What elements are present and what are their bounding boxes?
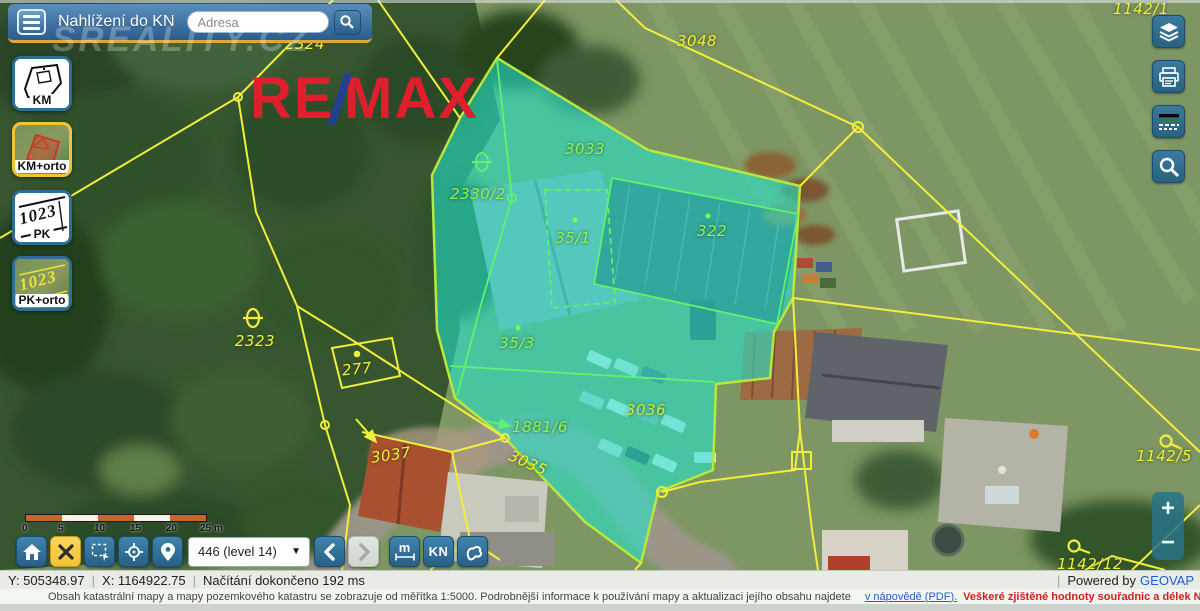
magnifier-icon — [339, 14, 355, 30]
map-viewer-app: 232430481142/12323277303730351142/51142/… — [0, 0, 1200, 611]
zoom-panel: + − — [1152, 492, 1184, 560]
layers-button[interactable] — [1152, 15, 1185, 48]
scale-bar-labels: 0510152025 m — [25, 522, 207, 534]
home-icon — [22, 542, 42, 562]
magnifier-icon — [1158, 156, 1180, 178]
window-bottom-edge — [0, 604, 1200, 611]
scale-label: 0 — [22, 523, 28, 534]
page-title: Nahlížení do KN — [58, 13, 175, 31]
close-tool-button[interactable] — [50, 536, 81, 567]
aerial-map-graphic — [0, 0, 1200, 570]
status-bar: Y: 505348.97 | X: 1164922.75 | Načítání … — [0, 570, 1200, 589]
map-pin-icon — [159, 542, 177, 562]
scale-label: 20 — [166, 523, 177, 534]
chevron-down-icon: ▼ — [291, 546, 309, 557]
scale-label: 15 — [130, 523, 141, 534]
scale-segment — [170, 515, 206, 521]
scale-segment — [62, 515, 98, 521]
address-search-button[interactable] — [334, 10, 361, 35]
address-search-input[interactable] — [187, 11, 329, 33]
info-text: Obsah katastrální mapy a mapy pozemkovéh… — [48, 591, 851, 603]
scale-segment — [98, 515, 134, 521]
level-dropdown[interactable]: 446 (level 14) ▼ — [188, 537, 310, 567]
loading-status: Načítání dokončeno 192 ms — [203, 573, 365, 588]
print-button[interactable] — [1152, 60, 1185, 93]
menu-hamburger-button[interactable] — [17, 9, 46, 35]
map-type-km-label: KM — [30, 94, 55, 107]
back-button[interactable] — [314, 536, 345, 567]
map-type-pk-button[interactable]: 1023 PK — [12, 190, 72, 245]
scale-label: 10 — [94, 523, 105, 534]
kn-button-label: KN — [429, 544, 449, 559]
map-type-km-orto-label: KM+orto — [15, 160, 70, 173]
scale-bar-segments — [25, 514, 207, 522]
kn-button[interactable]: KN — [423, 536, 454, 567]
map-type-pk-orto-label: PK+orto — [15, 294, 68, 307]
powered-by-brand-link[interactable]: GEOVAP — [1140, 573, 1194, 588]
info-bar: Obsah katastrální mapy a mapy pozemkovéh… — [0, 589, 1200, 604]
window-top-edge — [0, 0, 1200, 3]
help-pdf-link[interactable]: v nápovědě (PDF). — [865, 591, 957, 603]
map-type-km-orto-button[interactable]: KM+orto — [12, 122, 72, 177]
scale-label: 5 — [58, 523, 64, 534]
powered-by-prefix: Powered by — [1067, 573, 1136, 588]
bottom-toolbar: 446 (level 14) ▼ m KN — [16, 536, 491, 567]
print-icon — [1158, 66, 1180, 88]
map-canvas[interactable]: 232430481142/12323277303730351142/51142/… — [0, 0, 1200, 570]
zoom-out-button[interactable]: − — [1152, 532, 1184, 554]
home-button[interactable] — [16, 536, 47, 567]
locate-button[interactable] — [118, 536, 149, 567]
scale-settings-button[interactable] — [1152, 105, 1185, 138]
marker-button[interactable] — [152, 536, 183, 567]
coord-x: X: 1164922.75 — [102, 573, 186, 588]
measure-icon: m — [394, 543, 416, 561]
chevron-left-icon — [321, 542, 339, 562]
map-type-pk-label: PK — [31, 228, 54, 241]
polygon-info-button[interactable] — [457, 536, 488, 567]
level-dropdown-value: 446 (level 14) — [189, 544, 291, 559]
scale-preview-icon — [1157, 111, 1181, 133]
map-type-km-button[interactable]: KM — [12, 56, 72, 111]
scale-segment — [26, 515, 62, 521]
selection-rectangle-icon — [90, 542, 110, 562]
warning-text: Veškeré zjištěné hodnoty souřadnic a dél… — [963, 591, 1200, 603]
forward-button[interactable] — [348, 536, 379, 567]
map-search-button[interactable] — [1152, 150, 1185, 183]
polygon-outline-icon — [462, 541, 484, 563]
scale-label: 25 m — [200, 523, 223, 534]
measure-button[interactable]: m — [389, 536, 420, 567]
layers-icon — [1158, 21, 1180, 43]
target-icon — [124, 542, 144, 562]
app-header: Nahlížení do KN — [8, 4, 372, 43]
scale-segment — [134, 515, 170, 521]
coord-y: Y: 505348.97 — [8, 573, 85, 588]
chevron-right-icon — [355, 542, 373, 562]
select-area-button[interactable] — [84, 536, 115, 567]
close-icon — [58, 544, 74, 560]
zoom-in-button[interactable]: + — [1152, 498, 1184, 520]
map-type-pk-orto-button[interactable]: 1023 PK+orto — [12, 256, 72, 311]
scale-bar: 0510152025 m — [25, 514, 207, 534]
